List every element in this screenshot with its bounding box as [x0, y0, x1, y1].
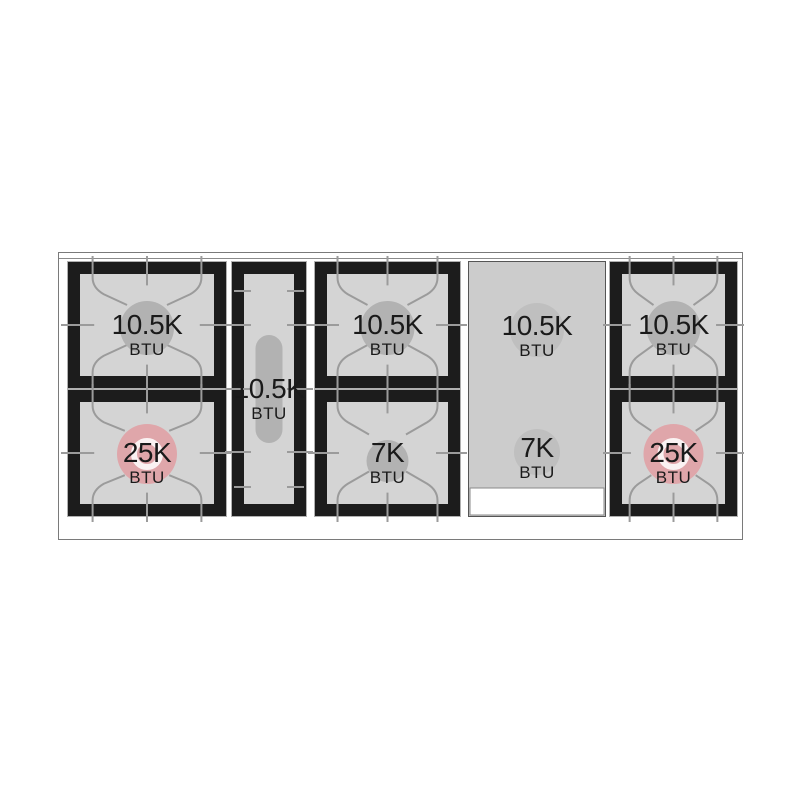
burner-grate-icon — [609, 261, 738, 389]
burner-grate-icon — [314, 261, 461, 389]
griddle-plate: 10.5K BTU 7K BTU — [468, 261, 606, 517]
burner-middle-rear: 10.5K BTU — [314, 261, 461, 389]
burner-center-oval: 10.5K BTU — [231, 261, 307, 517]
burner-middle-front: 7K BTU — [314, 389, 461, 517]
burner-left-rear: 10.5K BTU — [67, 261, 227, 389]
burner-left-front: 25K BTU — [67, 389, 227, 517]
burner-right-front: 25K BTU — [609, 389, 738, 517]
burner-grate-icon — [67, 389, 227, 517]
burner-grate-icon — [67, 261, 227, 389]
cooktop-back-trim — [59, 258, 742, 259]
page: 10.5K BTU 25K BTU 10.5K BTU 10.5K — [0, 0, 800, 800]
cooktop-diagram: 10.5K BTU 25K BTU 10.5K BTU 10.5K — [58, 252, 743, 540]
griddle-plate-icon — [468, 261, 606, 517]
burner-right-rear: 10.5K BTU — [609, 261, 738, 389]
burner-grate-icon — [609, 389, 738, 517]
oval-burner-grate-icon — [231, 261, 307, 517]
burner-grate-icon — [314, 389, 461, 517]
